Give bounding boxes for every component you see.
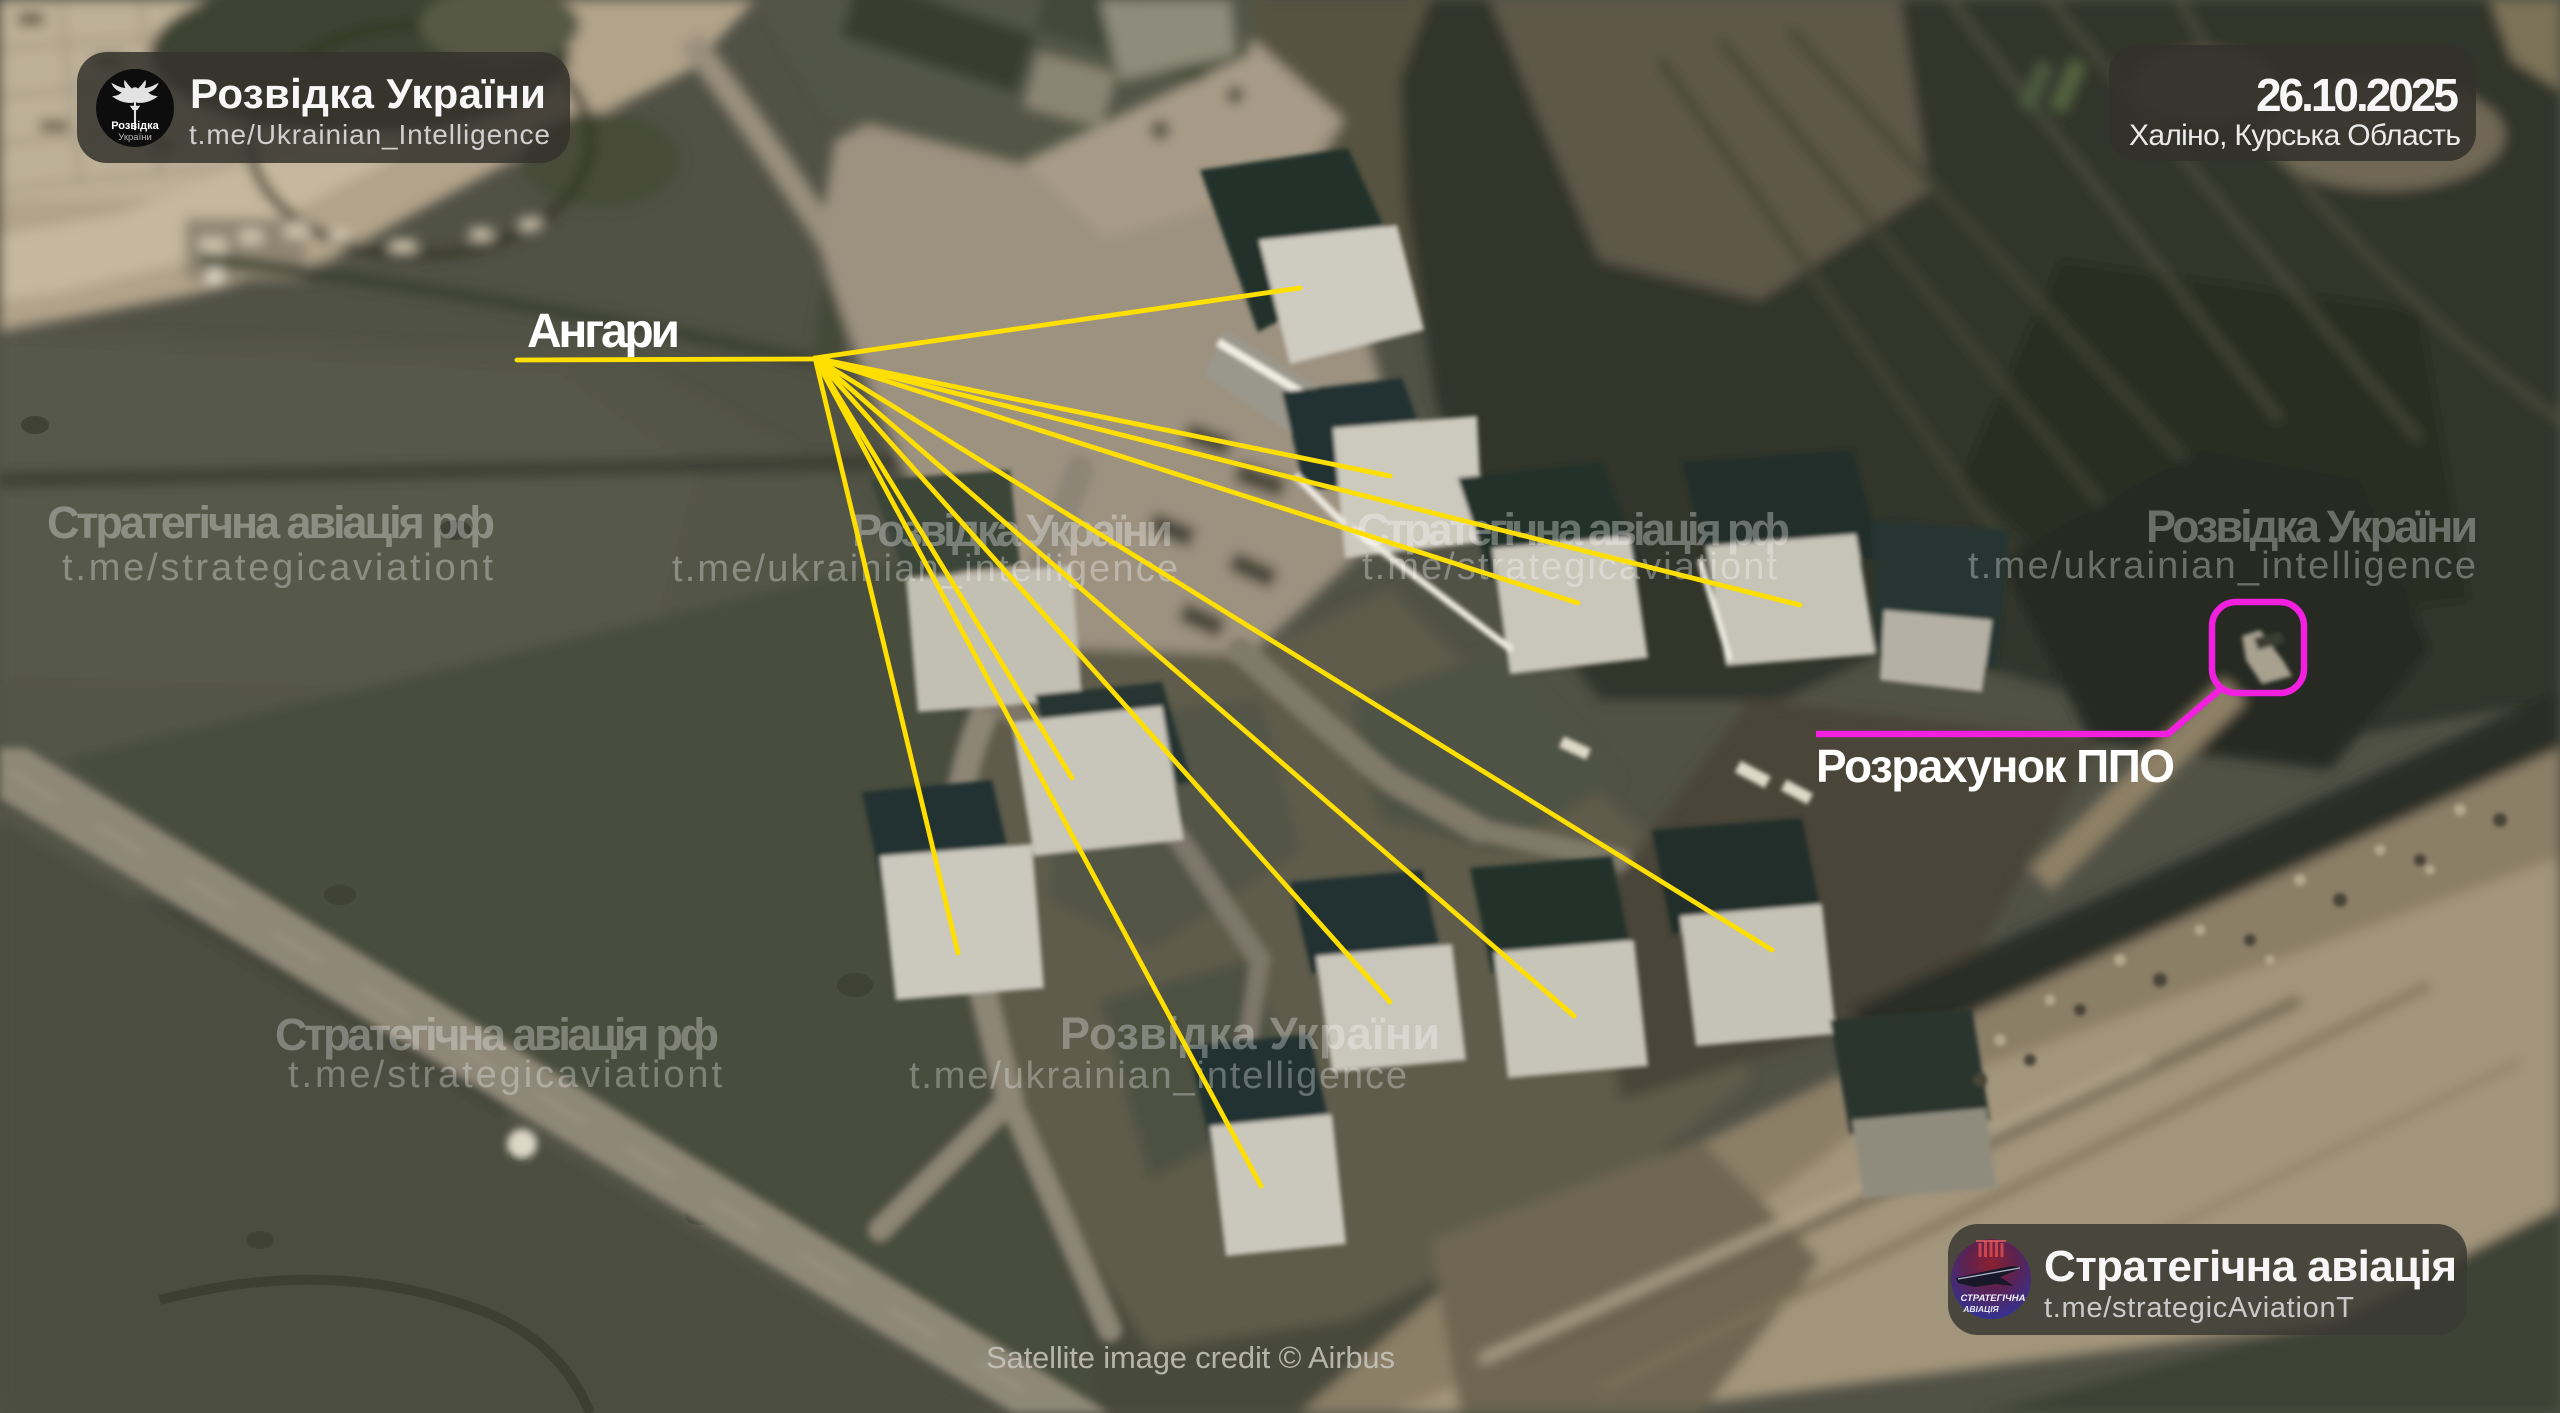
svg-text:t.me/strategicaviationt: t.me/strategicaviationt bbox=[62, 547, 493, 589]
svg-text:Розвідка України: Розвідка України bbox=[1060, 1008, 1440, 1059]
svg-text:t.me/ukrainian_intelligence: t.me/ukrainian_intelligence bbox=[672, 548, 1178, 590]
svg-text:t.me/ukrainian_intelligence: t.me/ukrainian_intelligence bbox=[1968, 545, 2476, 587]
svg-text:t.me/strategicAviationT: t.me/strategicAviationT bbox=[2044, 1292, 2354, 1324]
svg-text:АВІАЦІЯ: АВІАЦІЯ bbox=[1962, 1304, 1999, 1314]
svg-text:Розвідка України: Розвідка України bbox=[190, 70, 546, 117]
svg-text:Satellite image credit © Airbu: Satellite image credit © Airbus bbox=[986, 1340, 1395, 1375]
svg-text:26.10.2025: 26.10.2025 bbox=[2256, 69, 2459, 121]
svg-text:t.me/ukrainian_intelligence: t.me/ukrainian_intelligence bbox=[909, 1055, 1407, 1097]
svg-text:СТРАТЕГІЧНА: СТРАТЕГІЧНА bbox=[1961, 1293, 2026, 1304]
svg-text:Розвідка: Розвідка bbox=[111, 120, 159, 132]
svg-text:Розрахунок ППО: Розрахунок ППО bbox=[1816, 740, 2175, 792]
svg-text:t.me/strategicaviationt: t.me/strategicaviationt bbox=[288, 1054, 722, 1096]
svg-text:України: України bbox=[118, 132, 152, 143]
svg-text:Ангари: Ангари bbox=[527, 305, 680, 358]
svg-text:Стратегічна авіація рф: Стратегічна авіація рф bbox=[47, 497, 495, 548]
svg-text:t.me/Ukrainian_Intelligence: t.me/Ukrainian_Intelligence bbox=[189, 119, 550, 150]
svg-text:Халіно, Курська Область: Халіно, Курська Область bbox=[2129, 119, 2461, 152]
svg-text:Стратегічна авіація: Стратегічна авіація bbox=[2044, 1242, 2457, 1291]
svg-text:Стратегічна авіація рф: Стратегічна авіація рф bbox=[275, 1009, 719, 1060]
